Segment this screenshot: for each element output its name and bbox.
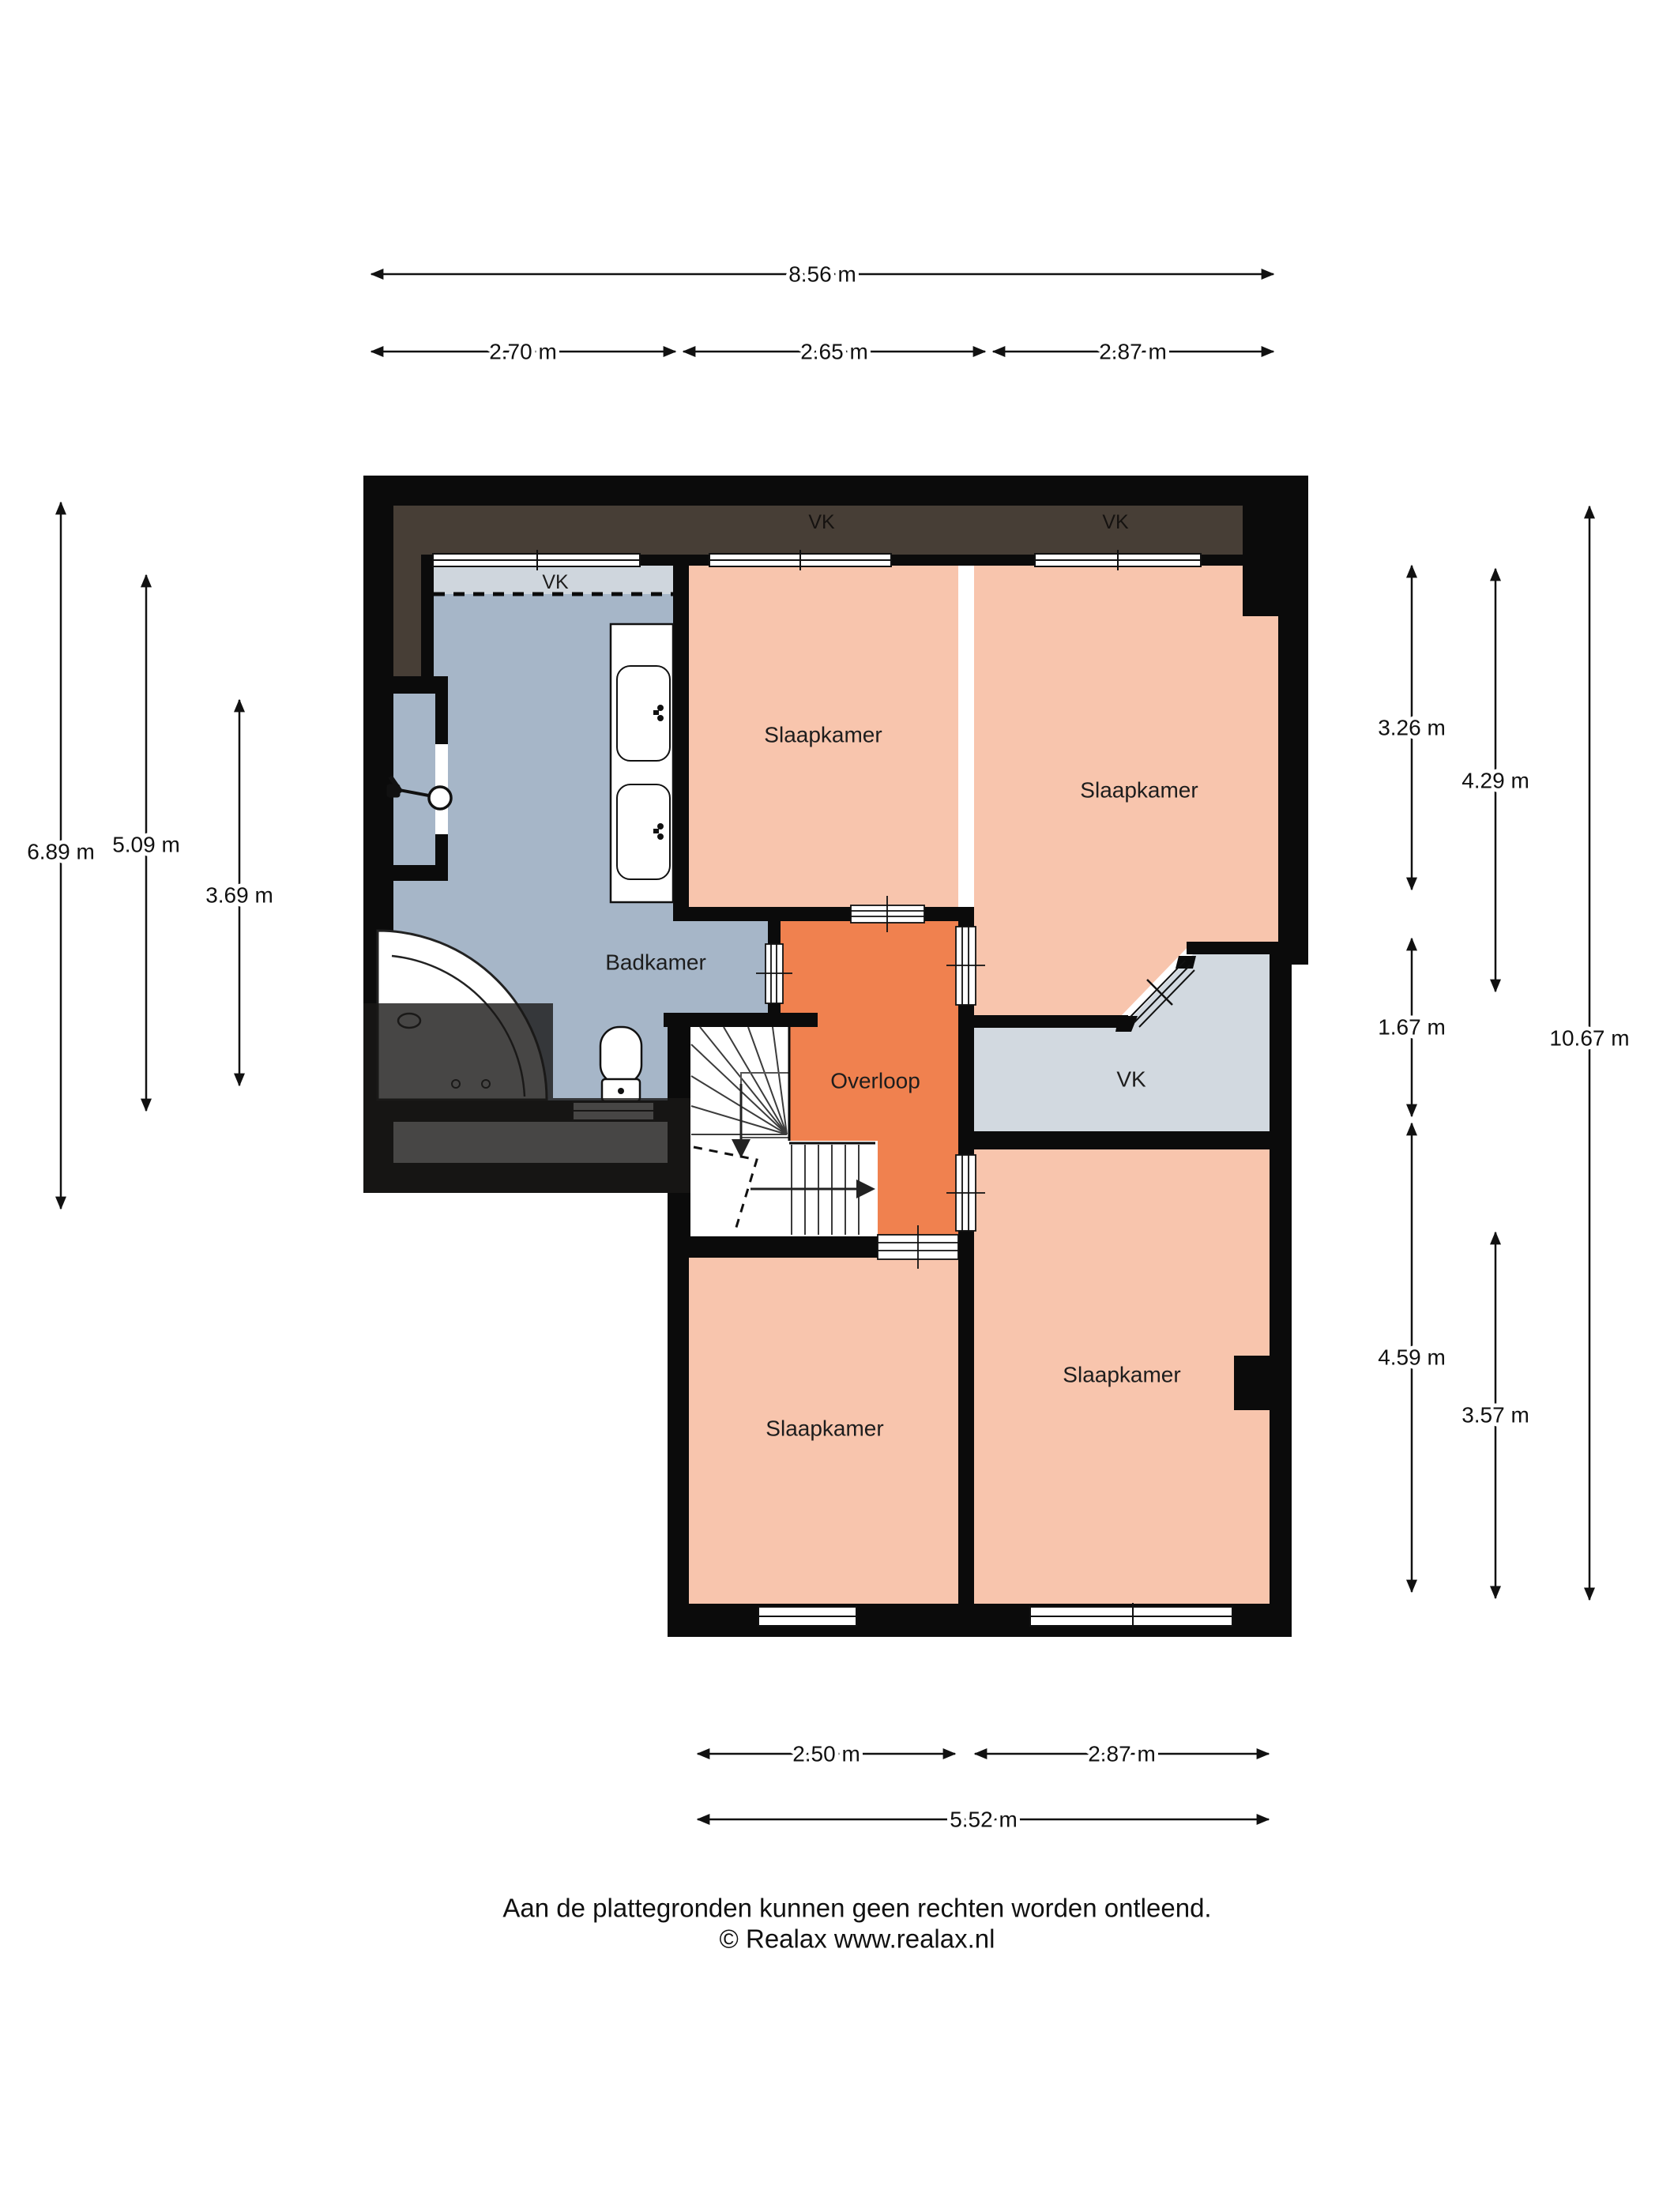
dim-bottom-3: 5.52 m — [950, 1808, 1018, 1832]
copyright-text: © Realax www.realax.nl — [720, 1924, 995, 1954]
chimney — [1234, 1356, 1270, 1410]
label-bedroom-top-left: Slaapkamer — [764, 723, 882, 747]
dim-right-3: 1.67 m — [1378, 1015, 1446, 1040]
dim-left-3: 3.69 m — [205, 883, 273, 908]
window-bedroom-bottom-left — [758, 1607, 856, 1626]
dim-right-6: 3.57 m — [1461, 1403, 1529, 1428]
dim-bottom-1: 2.50 m — [792, 1742, 860, 1766]
dim-right-1: 3.26 m — [1378, 716, 1446, 740]
dim-left-1: 6.89 m — [27, 840, 95, 864]
disclaimer-text: Aan de plattegronden kunnen geen rechten… — [502, 1894, 1211, 1923]
floorplan-drawing: VK VK VK Slaapkamer Slaapkamer Badkamer … — [0, 0, 1659, 2212]
toilet-icon — [600, 1027, 641, 1101]
label-closet-attic-2: VK — [1102, 511, 1129, 533]
label-closet-right: VK — [1116, 1067, 1146, 1092]
dim-right-5: 4.59 m — [1378, 1345, 1446, 1370]
vanity-sinks-icon — [611, 624, 673, 902]
label-closet-attic-1: VK — [808, 511, 835, 533]
label-landing: Overloop — [830, 1069, 920, 1093]
dim-top-3: 2.87 m — [1099, 340, 1167, 364]
dim-right-4: 10.67 m — [1549, 1026, 1629, 1051]
dim-left-2: 5.09 m — [112, 833, 180, 857]
dim-top-2: 2.65 m — [800, 340, 868, 364]
label-closet-bathroom: VK — [542, 571, 569, 593]
dim-top-total: 8.56 m — [788, 262, 856, 287]
window-bedroom-bottom-right — [1030, 1603, 1232, 1630]
floorplan-page: VK VK VK Slaapkamer Slaapkamer Badkamer … — [0, 0, 1659, 2212]
label-bedroom-bottom-right: Slaapkamer — [1063, 1363, 1180, 1387]
label-bathroom: Badkamer — [605, 950, 706, 975]
dim-right-2: 4.29 m — [1461, 769, 1529, 793]
label-bedroom-top-right: Slaapkamer — [1080, 778, 1198, 803]
dim-bottom-2: 2.87 m — [1088, 1742, 1156, 1766]
dim-top-1: 2.70 m — [489, 340, 557, 364]
footer: Aan de plattegronden kunnen geen rechten… — [502, 1894, 1211, 1954]
label-bedroom-bottom-left: Slaapkamer — [766, 1416, 883, 1441]
